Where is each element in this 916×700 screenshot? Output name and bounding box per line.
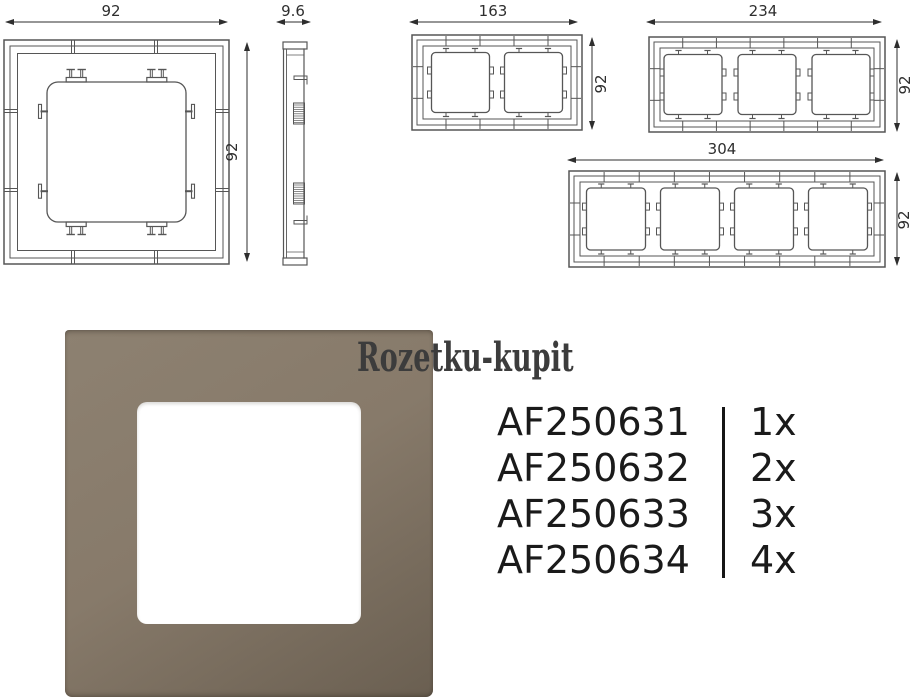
part-row: AF2506333x	[497, 491, 797, 537]
part-quantity: 1x	[750, 399, 797, 445]
parts-divider	[722, 407, 725, 578]
part-number: AF250633	[497, 491, 750, 537]
drawing-front-2gang	[412, 35, 582, 130]
drawing-front-3gang	[649, 37, 885, 132]
part-row: AF2506344x	[497, 537, 797, 583]
dims-front-4gang: 30492	[567, 140, 913, 266]
svg-text:92: 92	[223, 142, 241, 161]
part-row: AF2506322x	[497, 445, 797, 491]
part-number: AF250632	[497, 445, 750, 491]
dims-front-2gang: 16392	[409, 2, 610, 130]
part-quantity: 2x	[750, 445, 797, 491]
svg-text:304: 304	[708, 140, 737, 158]
dims-side-profile: 9.6	[276, 2, 311, 25]
svg-text:9.6: 9.6	[281, 2, 305, 20]
svg-text:92: 92	[896, 75, 914, 94]
svg-text:92: 92	[101, 2, 120, 20]
drawing-front-1gang	[4, 40, 229, 264]
part-quantity: 4x	[750, 537, 797, 583]
technical-drawings: 92929.6163922349230492	[0, 0, 916, 310]
svg-text:92: 92	[592, 74, 610, 93]
part-row: AF2506311x	[497, 399, 797, 445]
part-number: AF250631	[497, 399, 750, 445]
svg-text:92: 92	[895, 210, 913, 229]
svg-text:163: 163	[479, 2, 508, 20]
part-quantity: 3x	[750, 491, 797, 537]
product-image: 92929.6163922349230492 Rozetku-kupit AF2…	[0, 0, 916, 700]
product-photo	[65, 330, 433, 697]
parts-table: AF2506311xAF2506322xAF2506333xAF2506344x	[497, 399, 797, 583]
svg-text:234: 234	[749, 2, 778, 20]
drawing-side-profile	[283, 42, 307, 265]
part-number: AF250634	[497, 537, 750, 583]
watermark-text: Rozetku-kupit	[357, 337, 574, 379]
frame-cutout	[137, 402, 361, 624]
dims-front-1gang: 9292	[5, 2, 250, 262]
drawing-front-4gang	[569, 171, 885, 267]
